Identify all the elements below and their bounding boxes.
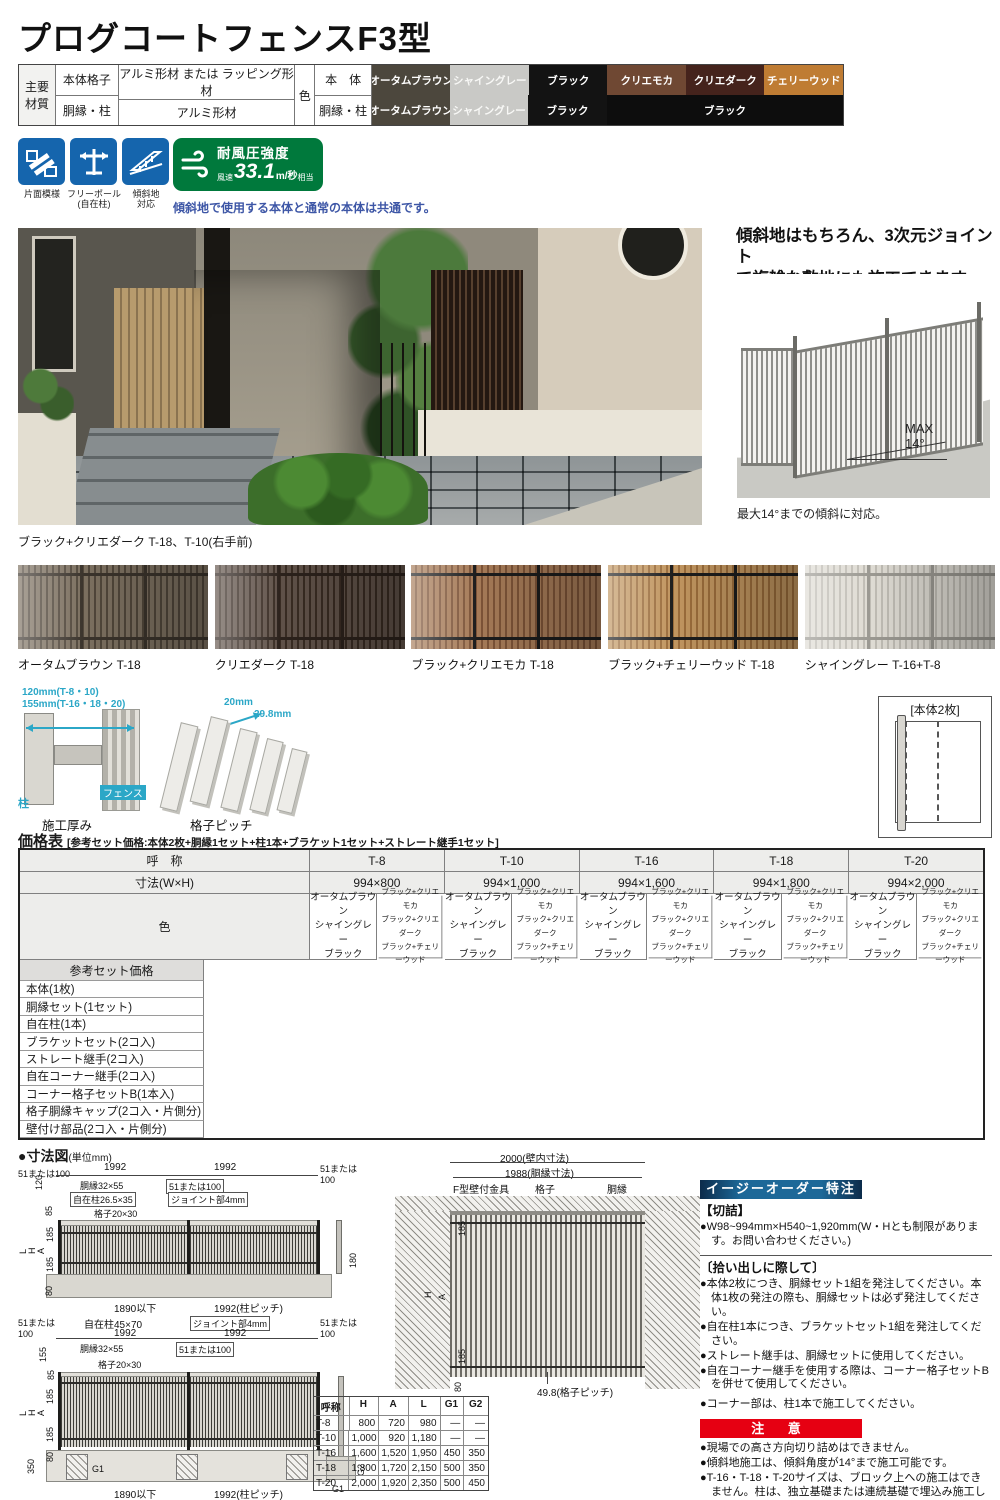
note-item: ●自在柱1本につき、ブラケットセット1組を発注してください。 bbox=[700, 1321, 992, 1349]
size-table-cell: — bbox=[464, 1416, 488, 1431]
size-table-cell: T-10 bbox=[314, 1431, 349, 1446]
top-wall bbox=[395, 1196, 700, 1211]
size-table-cell: 500 bbox=[441, 1461, 465, 1476]
slope-illustration: MAX 14° bbox=[737, 274, 990, 498]
thickness-diagram: 120mm(T-8・10) 155mm(T-16・18・20) 柱 フェンス 施… bbox=[18, 683, 158, 833]
photo-planter bbox=[18, 413, 76, 525]
size-table-cell: 2,150 bbox=[409, 1461, 440, 1476]
pitch-diagram: 20mm 29.8mm 格子ピッチ bbox=[162, 683, 312, 833]
price-color-group-a: オータムブラウン シャイングレー ブラック bbox=[445, 894, 512, 960]
perspective-shade bbox=[805, 565, 995, 649]
price-color-group-b: ブラック+クリエモカ ブラック+クリエダーク ブラック+チェリーウッド bbox=[514, 896, 578, 959]
materials-table: 主要材質 本体格子 胴縁・柱 アルミ形材 または ラッピング形材 アルミ形材 色… bbox=[18, 64, 844, 126]
price-item-label: 本体(1枚) bbox=[20, 981, 204, 998]
price-color-group-a: オータムブラウン シャイングレー ブラック bbox=[310, 894, 377, 960]
photo-shrub bbox=[248, 453, 428, 525]
thickness-arrow bbox=[26, 727, 134, 729]
size-table: 呼称HALG1G2T-8800720980——T-101,0009201,180… bbox=[313, 1396, 489, 1491]
wall-dim: 49.8(格子ピッチ) bbox=[535, 1384, 615, 1399]
set-price-empty bbox=[204, 960, 983, 981]
wind-speed-suffix: 相当 bbox=[298, 174, 314, 182]
slope-angle-line bbox=[847, 459, 947, 460]
color-swatch: ブラック bbox=[607, 95, 843, 125]
color-swatch: クリエモカ bbox=[607, 65, 686, 95]
price-item-row: 自在柱(1本) bbox=[20, 1016, 983, 1033]
price-color-group-a: オータムブラウン シャイングレー ブラック bbox=[714, 894, 781, 960]
size-table-cell: T-18 bbox=[314, 1461, 349, 1476]
size-table-cell: T-20 bbox=[314, 1476, 349, 1490]
size-table-row: T-101,0009201,180—— bbox=[314, 1431, 488, 1446]
price-col-name: T-18 bbox=[714, 850, 849, 872]
dim-line bbox=[56, 1338, 318, 1339]
mid-rail bbox=[450, 1222, 645, 1224]
frame-color-label: 胴縁・柱 bbox=[315, 96, 372, 126]
block-wall bbox=[46, 1274, 332, 1298]
d1-dim: 1992(柱ピッチ) bbox=[214, 1300, 283, 1315]
post-label: 柱 bbox=[18, 795, 29, 811]
color-swatch: オータムブラウン bbox=[372, 95, 450, 125]
body-color-label: 本 体 bbox=[315, 65, 372, 96]
wall-mount-diagram: 2000(壁内寸法) 1988(胴縁寸法) F型壁付金具 格子 胴縁 185 H… bbox=[395, 1150, 700, 1395]
fence-post bbox=[187, 1372, 190, 1450]
wall-dim: 185 bbox=[457, 1349, 467, 1364]
d1-dim: 85 bbox=[44, 1206, 54, 1216]
size-table-cell: 350 bbox=[464, 1461, 488, 1476]
note-item: ●ストレート継手は、胴縁セットに使用してください。 bbox=[700, 1350, 992, 1364]
size-table-header: G2 bbox=[464, 1397, 488, 1416]
materials-row-label: 胴縁・柱 bbox=[56, 96, 119, 126]
d1-label: 自在柱26.5×35 bbox=[70, 1192, 136, 1207]
price-item-value bbox=[204, 1103, 983, 1120]
price-item-row: ブラケットセット(2コ入) bbox=[20, 1033, 983, 1050]
color-swatch: ブラック bbox=[529, 65, 608, 95]
catalog-page: プログコートフェンスF3型 主要材質 本体格子 胴縁・柱 アルミ形材 または ラ… bbox=[0, 0, 1000, 1500]
price-col-name: T-8 bbox=[310, 850, 445, 872]
color-swatch: シャイングレー bbox=[450, 95, 528, 125]
price-item-value bbox=[204, 1068, 983, 1085]
color-swatch: オータムブラウン bbox=[372, 65, 451, 95]
size-table-row: T-8800720980—— bbox=[314, 1416, 488, 1431]
dimension-diagram-2: 51または 100 自在柱45×70 ジョイント部4mm 51または 100 1… bbox=[18, 1316, 358, 1500]
slope-compatibility-note: 傾斜地で使用する本体と通常の本体は共通です。 bbox=[173, 199, 436, 216]
slat bbox=[276, 748, 307, 814]
size-table-cell: — bbox=[441, 1416, 465, 1431]
d1-dim: 1992 bbox=[104, 1162, 126, 1173]
pickup-list: ●本体2枚につき、胴縁セット1組を発注してください。本体1枚の発注の際も、胴縁セ… bbox=[700, 1278, 992, 1393]
footing bbox=[176, 1454, 198, 1480]
size-table-header: L bbox=[409, 1397, 441, 1416]
price-item-row: 自在コーナー継手(2コ入) bbox=[20, 1068, 983, 1085]
price-items: 本体(1枚)胴縁セット(1セット)自在柱(1本)ブラケットセット(2コ入)ストレ… bbox=[20, 981, 983, 1138]
bracket bbox=[54, 745, 102, 765]
dim-line bbox=[453, 1177, 642, 1178]
price-item-label: 自在柱(1本) bbox=[20, 1016, 204, 1033]
feature-label: 片面模様 bbox=[14, 189, 70, 199]
fence-post bbox=[58, 1220, 61, 1276]
wall-dim: A bbox=[437, 1294, 447, 1300]
main-photo-caption: ブラック+クリエダーク T-18、T-10(右手前) bbox=[18, 533, 252, 550]
body-color-row: オータムブラウンシャイングレーブラッククリエモカクリエダークチェリーウッド bbox=[372, 65, 843, 95]
price-col-name: T-10 bbox=[445, 850, 580, 872]
size-table-cell: 450 bbox=[441, 1446, 465, 1461]
color-photo: クリエダーク T-18 bbox=[215, 565, 405, 673]
price-col-name: T-16 bbox=[580, 850, 715, 872]
d2-dim: 80 bbox=[45, 1452, 55, 1462]
frame-color-row: オータムブラウンシャイングレーブラックブラック bbox=[372, 95, 843, 125]
page-title: プログコートフェンスF3型 bbox=[18, 12, 432, 60]
color-swatch: クリエダーク bbox=[686, 65, 765, 95]
left-wall bbox=[395, 1211, 450, 1389]
size-table-cell: 920 bbox=[379, 1431, 409, 1446]
price-color-group-b: ブラック+クリエモカ ブラック+クリエダーク ブラック+チェリーウッド bbox=[784, 896, 848, 959]
price-item-row: コーナー格子セットB(1本入) bbox=[20, 1086, 983, 1103]
wall-label: 格子 bbox=[535, 1181, 555, 1196]
price-color-group-b: ブラック+クリエモカ ブラック+クリエダーク ブラック+チェリーウッド bbox=[918, 896, 981, 959]
size-table-cell: T-16 bbox=[314, 1446, 349, 1461]
price-item-value bbox=[204, 1051, 983, 1068]
price-color-group-b: ブラック+クリエモカ ブラック+クリエダーク ブラック+チェリーウッド bbox=[649, 896, 713, 959]
d2-dim: G1 bbox=[92, 1464, 104, 1474]
wall-label: F型壁付金具 bbox=[453, 1181, 509, 1196]
panel-dashed-line bbox=[937, 721, 939, 821]
price-item-row: 胴縁セット(1セット) bbox=[20, 998, 983, 1015]
perspective-shade bbox=[608, 565, 798, 649]
panel-set-diagram: [本体2枚] bbox=[878, 696, 992, 838]
color-column-header: 色 bbox=[295, 65, 315, 125]
size-table-header-row: 呼称HALG1G2 bbox=[314, 1397, 488, 1416]
color-photo: オータムブラウン T-18 bbox=[18, 565, 208, 673]
d2-dim: 85 bbox=[46, 1370, 56, 1380]
note-item: ●現場での高さ方向切り詰めはできません。 bbox=[700, 1442, 992, 1456]
price-color-group-b: ブラック+クリエモカ ブラック+クリエダーク ブラック+チェリーウッド bbox=[379, 896, 443, 959]
price-item-value bbox=[204, 1016, 983, 1033]
d2-dim: 155 bbox=[38, 1347, 48, 1362]
price-item-label: 壁付け部品(2コ入・片側分) bbox=[20, 1121, 204, 1138]
size-table-cell: 800 bbox=[350, 1416, 380, 1431]
size-table-cell: 450 bbox=[464, 1476, 488, 1490]
color-photo-caption: シャイングレー T-16+T-8 bbox=[805, 656, 995, 673]
fence-label: フェンス bbox=[100, 785, 146, 800]
price-item-label: ストレート継手(2コ入) bbox=[20, 1051, 204, 1068]
fence-post bbox=[187, 1220, 190, 1276]
slope-caption: 最大14°までの傾斜に対応。 bbox=[737, 505, 887, 522]
price-col-name: T-20 bbox=[849, 850, 983, 872]
d1-dim: 180 bbox=[348, 1253, 358, 1268]
d1-dim: 1992 bbox=[214, 1162, 236, 1173]
d2-label: 51または100 bbox=[176, 1342, 234, 1357]
d2-dim: 1890以下 bbox=[114, 1486, 156, 1500]
note-item: ●T-16・T-18・T-20サイズは、ブロック上への施工はできません。柱は、独… bbox=[700, 1472, 992, 1500]
set-price-label: 参考セット価格 bbox=[20, 960, 204, 981]
pickup-title: 〔拾い出しに際して〕 bbox=[700, 1261, 992, 1277]
size-table-cell: 1,520 bbox=[379, 1446, 409, 1461]
price-item-value bbox=[204, 1121, 983, 1138]
fence-photo-strip bbox=[805, 565, 995, 649]
fence-photo-strip bbox=[18, 565, 208, 649]
fence-post bbox=[885, 318, 889, 460]
d1-dim: A bbox=[36, 1248, 46, 1254]
perspective-shade bbox=[215, 565, 405, 649]
wall-dim: 80 bbox=[453, 1382, 463, 1392]
size-table-cell: 350 bbox=[464, 1446, 488, 1461]
color-photo-caption: クリエダーク T-18 bbox=[215, 656, 405, 673]
thickness-dim-2: 155mm(T-16・18・20) bbox=[22, 695, 125, 710]
panel-set-label: [本体2枚] bbox=[879, 701, 991, 718]
size-table-cell: 980 bbox=[409, 1416, 441, 1431]
slope-glyph bbox=[128, 144, 164, 180]
perspective-shade bbox=[18, 565, 208, 649]
fence-post bbox=[58, 1372, 61, 1450]
caution-list: ●現場での高さ方向切り詰めはできません。●傾斜地施工は、傾斜角度が14°まで施工… bbox=[700, 1442, 992, 1500]
easy-order-header: イージーオーダー特注 bbox=[700, 1180, 862, 1199]
d1-label: ジョイント部4mm bbox=[168, 1192, 248, 1207]
wind-speed-unit: m/秒 bbox=[276, 172, 298, 182]
size-table-row: T-181,8001,7202,150500350 bbox=[314, 1461, 488, 1476]
materials-row-value: アルミ形材 または ラッピング形材 bbox=[119, 65, 295, 100]
color-photo-caption: オータムブラウン T-18 bbox=[18, 656, 208, 673]
size-table-cell: 1,800 bbox=[349, 1461, 379, 1476]
max-angle-label: MAX 14° bbox=[905, 422, 933, 452]
fence-post bbox=[977, 302, 981, 442]
price-item-label: コーナー格子セットB(1本入) bbox=[20, 1086, 204, 1103]
size-table-cell: 500 bbox=[441, 1476, 465, 1490]
note-item: ●自在コーナー継手を使用する際は、コーナー格子セットBを併せて使用してください。 bbox=[700, 1365, 992, 1393]
dimension-diagram-1: 51または100 1992 1992 51または 100 胴縁32×55 51ま… bbox=[18, 1162, 358, 1314]
fence-slats bbox=[450, 1215, 645, 1377]
d1-dim: 1890以下 bbox=[114, 1300, 156, 1315]
note-item: ●W98~994mm×H540~1,920mm(W・Hとも制限があります。お問い… bbox=[700, 1221, 992, 1249]
slope-fence-panel-small bbox=[741, 348, 793, 466]
d2-dim: A bbox=[36, 1410, 46, 1416]
caution-header: 注 意 bbox=[700, 1419, 862, 1438]
size-table-row: T-161,6001,5201,950450350 bbox=[314, 1446, 488, 1461]
dim-line bbox=[450, 1162, 645, 1163]
size-table-cell: 1,600 bbox=[349, 1446, 379, 1461]
footing bbox=[286, 1454, 308, 1480]
d1-dim: 80 bbox=[44, 1286, 54, 1296]
price-table: 呼 称 T-8T-10T-16T-18T-20 寸法(W×H) 994×8009… bbox=[18, 848, 985, 1140]
wind-badge-title: 耐風圧強度 bbox=[217, 147, 314, 161]
divider bbox=[700, 1255, 992, 1256]
d2-dim: 51または 100 bbox=[18, 1316, 55, 1339]
color-swatch: チェリーウッド bbox=[764, 65, 843, 95]
free-pole-icon bbox=[70, 138, 117, 185]
wall-label: 胴縁 bbox=[607, 1181, 627, 1196]
size-table-header: H bbox=[350, 1397, 380, 1416]
price-item-value bbox=[204, 1086, 983, 1103]
d1-dim: 185 bbox=[45, 1257, 55, 1272]
materials-header: 主要材質 bbox=[19, 65, 56, 125]
feature-label: フリーポール (自在柱) bbox=[66, 189, 122, 210]
color-swatch: ブラック bbox=[528, 95, 607, 125]
color-photo-caption: ブラック+クリエモカ T-18 bbox=[411, 656, 601, 673]
price-color-group-a: オータムブラウン シャイングレー ブラック bbox=[580, 894, 647, 960]
materials-row-value: アルミ形材 bbox=[119, 100, 295, 125]
photo-fence-panel-right bbox=[431, 270, 523, 410]
materials-row-label: 本体格子 bbox=[56, 65, 119, 96]
d2-dim: 185 bbox=[45, 1427, 55, 1442]
d2-dim: 185 bbox=[45, 1389, 55, 1404]
free-pole-glyph bbox=[76, 144, 112, 180]
size-table-cell: 1,920 bbox=[379, 1476, 409, 1490]
d1-label: 格子20×30 bbox=[94, 1207, 137, 1220]
d1-dim: 185 bbox=[45, 1227, 55, 1242]
d2-dim: 51または 100 bbox=[320, 1316, 357, 1339]
price-item-value bbox=[204, 998, 983, 1015]
size-table-header: G1 bbox=[441, 1397, 465, 1416]
wall-dim: 185 bbox=[457, 1221, 467, 1236]
price-item-label: 自在コーナー継手(2コ入) bbox=[20, 1068, 204, 1085]
price-item-row: ストレート継手(2コ入) bbox=[20, 1051, 983, 1068]
color-photo: シャイングレー T-16+T-8 bbox=[805, 565, 995, 673]
main-product-photo bbox=[18, 228, 702, 525]
d1-label: 胴縁32×55 bbox=[80, 1179, 123, 1192]
fence-photo-strip bbox=[608, 565, 798, 649]
fence-post bbox=[793, 336, 797, 478]
price-item-row: 本体(1枚) bbox=[20, 981, 983, 998]
size-table-cell: 1,180 bbox=[409, 1431, 441, 1446]
slope-support-icon bbox=[122, 138, 169, 185]
kiritsume-list: ●W98~994mm×H540~1,920mm(W・Hとも制限があります。お問い… bbox=[700, 1221, 992, 1249]
panel-post bbox=[897, 715, 906, 831]
d2-dim: 1992(柱ピッチ) bbox=[214, 1486, 283, 1500]
size-table-row: T-202,0001,9202,350500450 bbox=[314, 1476, 488, 1490]
post-side-view bbox=[336, 1220, 342, 1274]
footing bbox=[66, 1454, 88, 1480]
wind-speed-value: 33.1 bbox=[234, 163, 275, 182]
corner-note: ●コーナー部は、柱1本で施工してください。 bbox=[700, 1398, 992, 1412]
wind-speed-prefix: 風速 bbox=[217, 174, 233, 182]
slat-pattern-glyph bbox=[25, 145, 59, 179]
d2-label: 格子20×30 bbox=[98, 1358, 141, 1371]
size-table-header: A bbox=[379, 1397, 409, 1416]
price-color-group-a: オータムブラウン シャイングレー ブラック bbox=[849, 894, 916, 960]
fence-photo-strip bbox=[215, 565, 405, 649]
price-name-header: 呼 称 bbox=[20, 850, 310, 872]
size-table-cell: 720 bbox=[379, 1416, 409, 1431]
price-size-header: 寸法(W×H) bbox=[20, 872, 310, 894]
mid-rail bbox=[450, 1366, 645, 1368]
price-row-colors: 色 オータムブラウン シャイングレー ブラックブラック+クリエモカ ブラック+ク… bbox=[20, 894, 983, 960]
photo-plant-left bbox=[18, 358, 74, 428]
fence-photo-strip bbox=[411, 565, 601, 649]
wind-icon bbox=[179, 148, 213, 182]
d1-dim: 120 bbox=[34, 1175, 44, 1190]
size-table-cell: 1,000 bbox=[349, 1431, 379, 1446]
size-table-cell: — bbox=[441, 1431, 465, 1446]
kiritsume-title: 【切詰】 bbox=[700, 1204, 992, 1220]
price-item-label: ブラケットセット(2コ入) bbox=[20, 1033, 204, 1050]
d1-dim: 51または100 bbox=[18, 1167, 70, 1180]
photo-window bbox=[32, 236, 76, 372]
color-swatch: シャイングレー bbox=[450, 65, 529, 95]
size-table-header: 呼称 bbox=[314, 1397, 350, 1416]
color-photo: ブラック+クリエモカ T-18 bbox=[411, 565, 601, 673]
color-photo: ブラック+チェリーウッド T-18 bbox=[608, 565, 798, 673]
price-item-value bbox=[204, 981, 983, 998]
price-item-row: 格子胴縁キャップ(2コ入・片側分) bbox=[20, 1103, 983, 1120]
d2-label: 胴縁32×55 bbox=[80, 1342, 123, 1355]
price-row-names: 呼 称 T-8T-10T-16T-18T-20 bbox=[20, 850, 983, 872]
perspective-shade bbox=[411, 565, 601, 649]
size-table-cell: 1,720 bbox=[379, 1461, 409, 1476]
one-side-pattern-icon bbox=[18, 138, 65, 185]
wind-resistance-badge: 耐風圧強度 風速 33.1 m/秒 相当 bbox=[173, 138, 323, 191]
size-table-cell: T-8 bbox=[314, 1416, 350, 1431]
price-item-label: 格子胴縁キャップ(2コ入・片側分) bbox=[20, 1103, 204, 1120]
fence-post bbox=[317, 1220, 320, 1276]
note-item: ●傾斜地施工は、傾斜角度が14°まで施工可能です。 bbox=[700, 1457, 992, 1471]
d1-dim: 51または 100 bbox=[320, 1162, 357, 1185]
notes-column: イージーオーダー特注 【切詰】 ●W98~994mm×H540~1,920mm(… bbox=[700, 1180, 992, 1500]
size-table-cell: 2,000 bbox=[349, 1476, 379, 1490]
feature-label: 傾斜地 対応 bbox=[118, 189, 174, 210]
price-color-header: 色 bbox=[20, 894, 310, 960]
wall-dim: H bbox=[423, 1292, 433, 1299]
size-table-cell: — bbox=[464, 1431, 488, 1446]
size-table-cell: 2,350 bbox=[409, 1476, 440, 1490]
price-item-value bbox=[204, 1033, 983, 1050]
color-photo-caption: ブラック+チェリーウッド T-18 bbox=[608, 656, 798, 673]
price-item-row: 壁付け部品(2コ入・片側分) bbox=[20, 1121, 983, 1138]
dim-line bbox=[56, 1175, 318, 1176]
d2-dim: 350 bbox=[26, 1459, 36, 1474]
size-table-cell: 1,950 bbox=[409, 1446, 440, 1461]
right-wall bbox=[645, 1211, 700, 1389]
pitch-dim-1: 20mm bbox=[224, 697, 253, 708]
note-item: ●本体2枚につき、胴縁セット1組を発注してください。本体1枚の発注の際も、胴縁セ… bbox=[700, 1278, 992, 1320]
price-item-label: 胴縁セット(1セット) bbox=[20, 998, 204, 1015]
